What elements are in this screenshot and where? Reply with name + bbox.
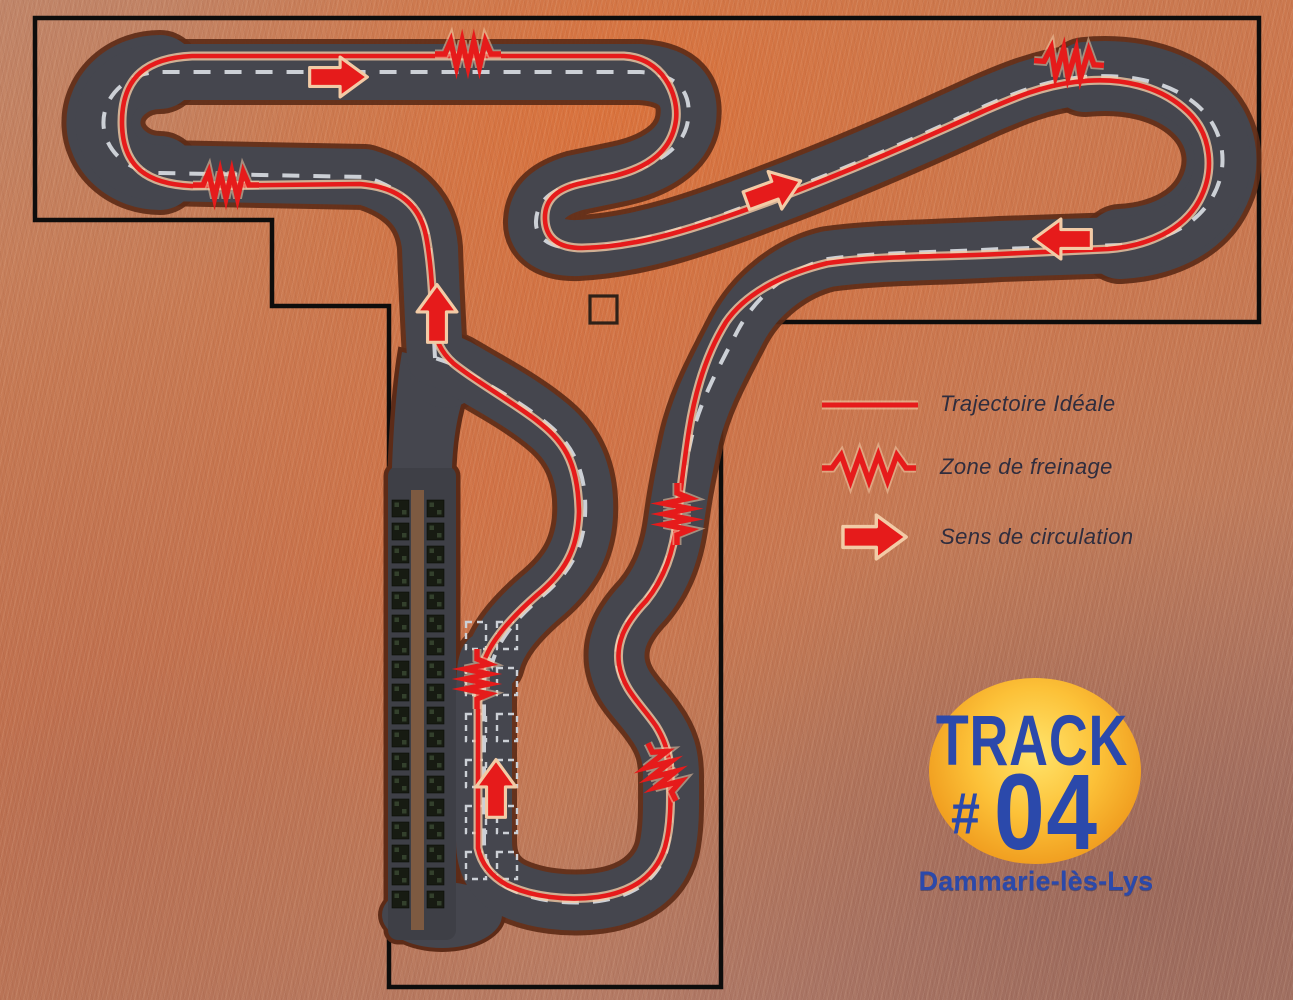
- pit-walkway: [411, 490, 424, 930]
- marker-square: [590, 296, 617, 323]
- legend-arrow-icon: [843, 515, 906, 559]
- track-map-page: Trajectoire Idéale Zone de freinage Sens…: [0, 0, 1293, 1000]
- legend-zigzag-icon: [822, 455, 916, 481]
- track-map-drawing: [0, 0, 1293, 1000]
